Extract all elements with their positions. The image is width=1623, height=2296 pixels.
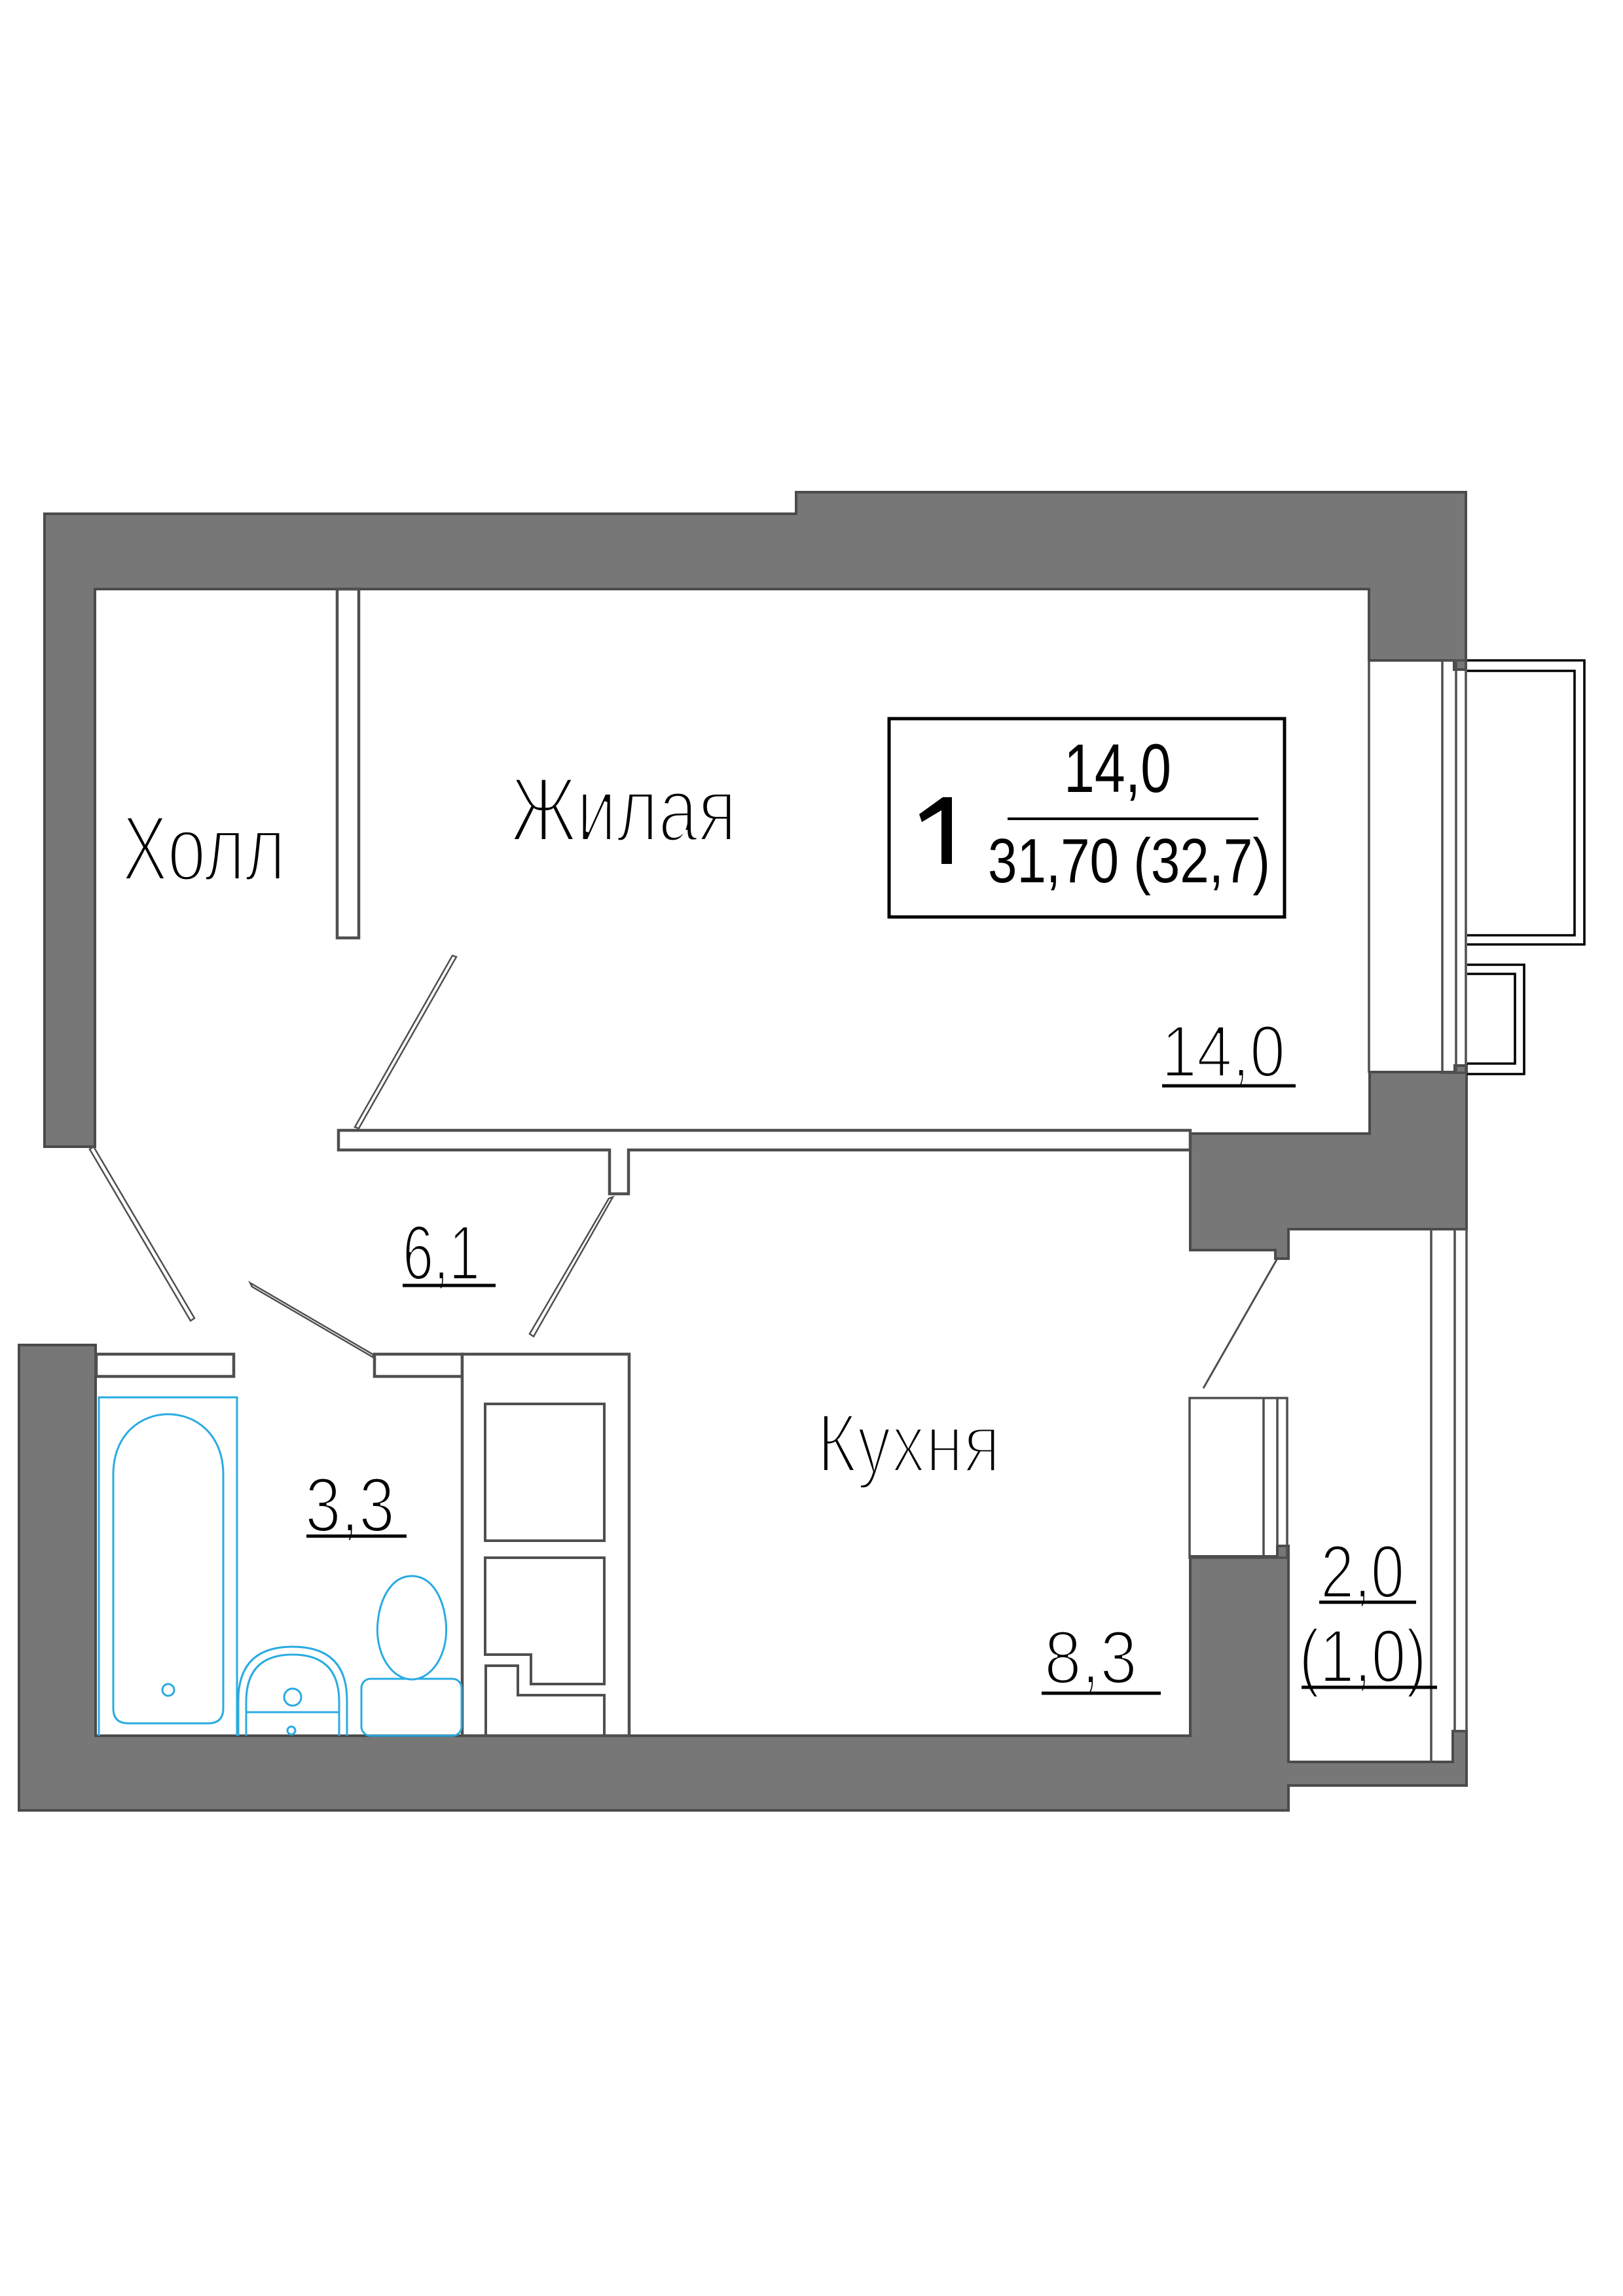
svg-text:14,0: 14,0 [1064,730,1171,807]
svg-text:Кухня: Кухня [817,1397,1000,1490]
svg-text:Холл: Холл [122,797,285,901]
svg-text:14,0: 14,0 [1161,1011,1285,1092]
svg-text:8,3: 8,3 [1044,1616,1137,1700]
svg-text:31,70 (32,7): 31,70 (32,7) [988,826,1270,896]
svg-text:Жилая: Жилая [511,758,737,861]
svg-text:6,1: 6,1 [403,1210,480,1297]
